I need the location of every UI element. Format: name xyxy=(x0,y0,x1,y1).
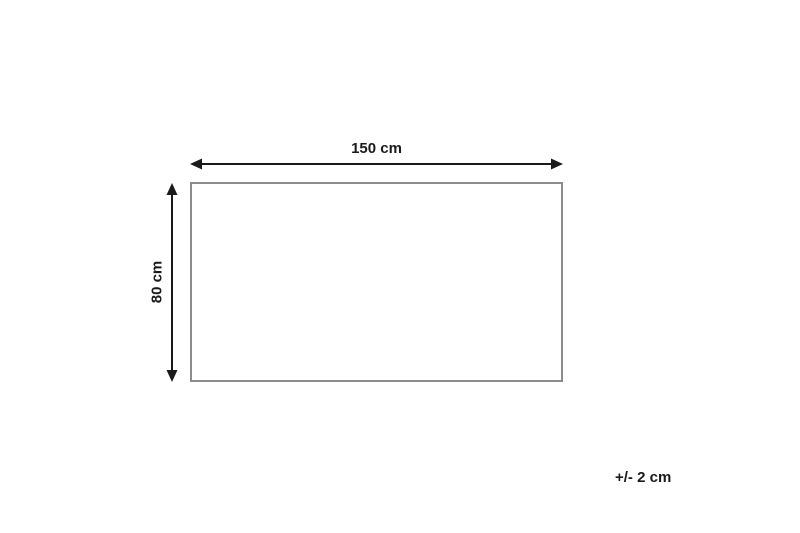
width-arrow-right-head xyxy=(551,159,563,170)
height-dimension-label: 80 cm xyxy=(149,261,166,304)
product-outline-rectangle xyxy=(190,182,563,382)
height-arrow-bottom-head xyxy=(167,370,178,382)
dimension-diagram: 150 cm 80 cm +/- 2 cm xyxy=(0,0,800,533)
width-dimension-label: 150 cm xyxy=(190,140,563,157)
tolerance-label: +/- 2 cm xyxy=(615,469,671,486)
width-dimension-arrow xyxy=(190,154,563,174)
width-arrow-left-head xyxy=(190,159,202,170)
height-arrow-top-head xyxy=(167,183,178,195)
